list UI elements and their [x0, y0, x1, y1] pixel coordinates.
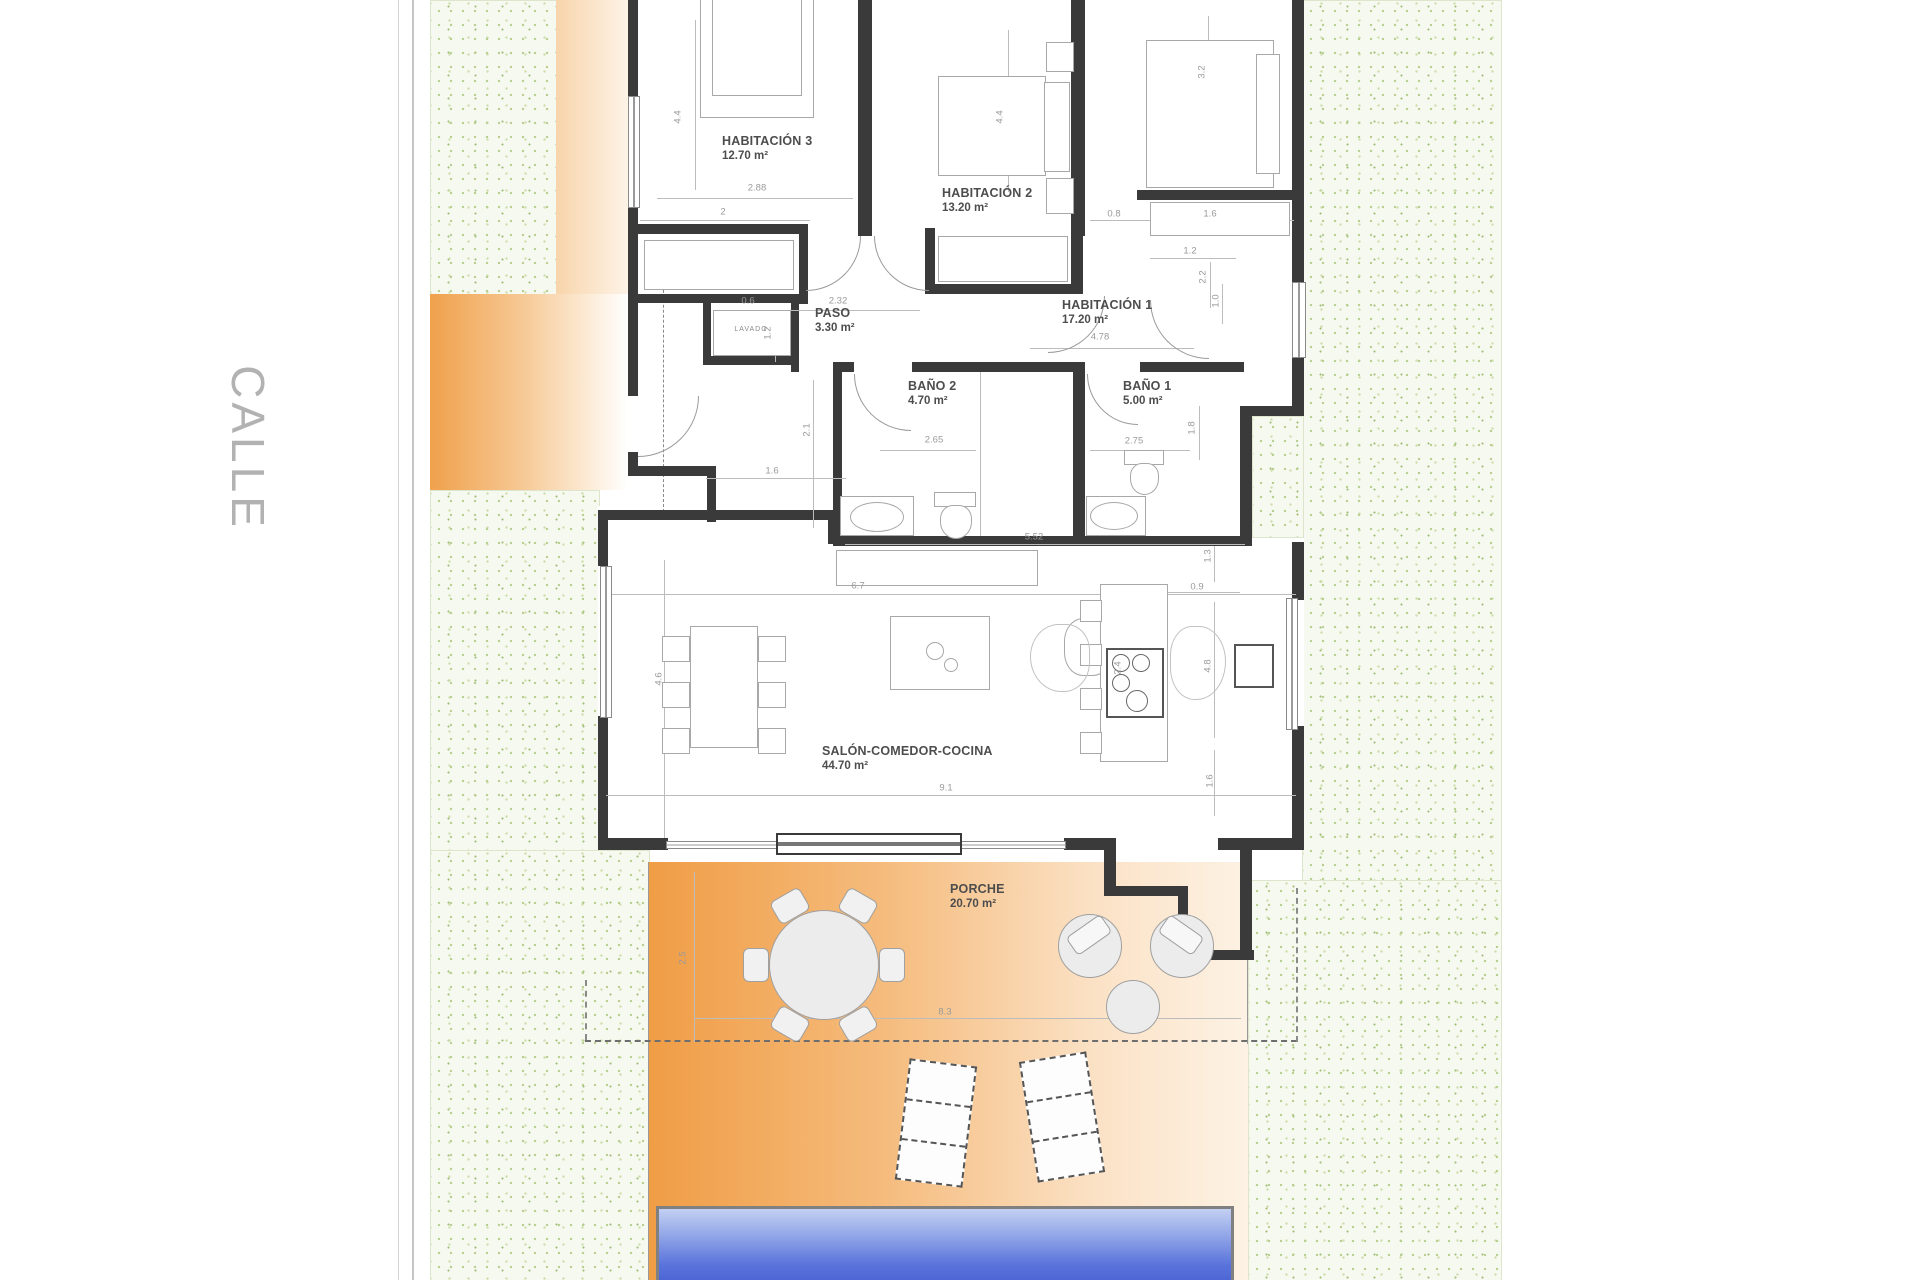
closet [644, 240, 794, 290]
wall-segment [912, 362, 1073, 372]
side-table [1106, 980, 1160, 1034]
room-name: BAÑO 1 [1123, 379, 1171, 393]
wall-segment [598, 510, 608, 566]
wall-segment [1240, 838, 1252, 958]
bed-mattress [712, 0, 802, 96]
driveway-side-strip [556, 0, 628, 294]
chair [758, 636, 786, 662]
chair [662, 636, 690, 662]
room-label-salon: SALÓN-COMEDOR-COCINA44.70 m² [822, 744, 993, 772]
wall-segment [628, 294, 808, 303]
window [666, 841, 778, 849]
wall-segment [1240, 406, 1252, 546]
laundry-label: LAVADO [716, 326, 786, 333]
room-name: HABITACIÓN 3 [722, 134, 812, 148]
burner [1132, 654, 1150, 672]
room-area: 5.00 m² [1123, 395, 1171, 407]
porch-boundary-dashed-right [1296, 888, 1298, 1042]
dim-label: 1.2 [1183, 246, 1196, 257]
lounger-slat [1033, 1131, 1097, 1143]
porch-table [769, 910, 879, 1020]
wall-segment [791, 302, 799, 372]
room-label-porche: PORCHE20.70 m² [950, 882, 1005, 910]
porch-chair [879, 948, 905, 982]
chair [758, 728, 786, 754]
room-area: 20.70 m² [950, 898, 1005, 910]
porch-boundary-dashed [585, 1040, 1297, 1042]
window [600, 566, 612, 718]
dim-label: 2.88 [748, 183, 767, 194]
window [628, 96, 640, 208]
dim-label: 6.7 [851, 581, 864, 592]
dim-label: 2.1 [802, 423, 813, 436]
dim-label: 1.2 [763, 326, 774, 339]
wall-segment [1137, 190, 1295, 200]
wall-segment [703, 302, 711, 364]
wall-segment [828, 510, 837, 544]
room-name: HABITACIÓN 2 [942, 186, 1032, 200]
toilet-bowl [940, 505, 972, 539]
room-label-habitacion3: HABITACIÓN 312.70 m² [722, 134, 812, 162]
street-label: CALLE [178, 348, 318, 548]
garden-notch [1252, 416, 1304, 538]
porch-chair [743, 948, 769, 982]
wall-segment [628, 0, 638, 96]
dimension-line [657, 198, 853, 199]
toilet-bowl [1130, 463, 1159, 495]
room-area: 13.20 m² [942, 202, 1032, 214]
room-label-habitacion2: HABITACIÓN 213.20 m² [942, 186, 1032, 214]
room-name: SALÓN-COMEDOR-COCINA [822, 744, 993, 758]
wall-segment [1140, 362, 1244, 372]
chair [662, 682, 690, 708]
dim-label: 4.4 [995, 110, 1006, 123]
wardrobe [938, 236, 1068, 282]
room-label-bano1: BAÑO 15.00 m² [1123, 379, 1171, 407]
chair [662, 728, 690, 754]
wall-segment [1292, 726, 1304, 848]
stool [1080, 688, 1102, 710]
table-decor [944, 658, 958, 672]
dim-label: 1.0 [1211, 294, 1222, 307]
room-area: 44.70 m² [822, 760, 993, 772]
fridge [1234, 644, 1274, 688]
dim-label: 2.2 [1198, 270, 1209, 283]
table-decor [926, 642, 944, 660]
dimension-line [790, 310, 920, 311]
dimension-line [694, 872, 695, 1042]
laundry-unit [713, 310, 791, 356]
garden-left-upper [430, 490, 600, 854]
room-area: 17.20 m² [1062, 314, 1152, 326]
dim-label: 5.52 [1025, 532, 1044, 543]
window [1286, 598, 1298, 730]
dim-label: 0.8 [1107, 209, 1120, 220]
dim-label: 9.1 [939, 783, 952, 794]
window [958, 841, 1066, 849]
dimension-line [845, 544, 1245, 545]
dimension-line [606, 795, 1296, 796]
dimension-line [1222, 284, 1223, 324]
dimension-line [640, 220, 810, 221]
room-label-paso: PASO3.30 m² [815, 306, 855, 334]
dimension-line [1168, 592, 1240, 593]
dim-label: 2.5 [678, 951, 689, 964]
dim-label: 2.75 [1125, 436, 1144, 447]
dim-label: 1.6 [1205, 774, 1216, 787]
garden-left-lower [430, 850, 650, 1280]
sink [1090, 502, 1138, 530]
dimension-line [1150, 258, 1236, 259]
dim-label: 2.65 [925, 435, 944, 446]
porch-boundary-dashed-left [585, 980, 587, 1040]
pool [656, 1206, 1234, 1280]
dining-table [690, 626, 758, 748]
wall-segment [628, 224, 808, 234]
dimension-line [1214, 546, 1215, 582]
dim-label: 4.8 [1203, 659, 1214, 672]
lounger-slat [902, 1138, 966, 1148]
wall-segment [598, 510, 838, 520]
floor-plan: CALLE [0, 0, 1920, 1280]
dim-label: 2 [720, 207, 725, 218]
dim-label: 3.2 [1197, 65, 1208, 78]
plot-left-line [412, 0, 414, 1280]
sliding-door [776, 833, 962, 855]
wall-segment [1292, 0, 1304, 282]
room-name: BAÑO 2 [908, 379, 956, 393]
stool [1080, 732, 1102, 754]
sink [850, 502, 904, 532]
street-curb-line [398, 0, 399, 1280]
wall-segment [598, 716, 608, 848]
wall-segment [1292, 542, 1304, 600]
dim-label: 1.8 [1187, 421, 1198, 434]
dimension-line [880, 450, 976, 451]
stool [1080, 600, 1102, 622]
burner [1126, 690, 1148, 712]
porch-edge-left [648, 862, 649, 1280]
garden-right-lower [1248, 880, 1502, 1280]
garden-top-left [430, 0, 558, 296]
dimension-line [706, 478, 846, 479]
bed-headboard [1044, 82, 1070, 172]
dimension-line [1199, 406, 1200, 460]
wall-segment [598, 838, 668, 850]
dim-label: 4.6 [654, 672, 665, 685]
window [1292, 282, 1306, 358]
wall-segment [1218, 838, 1304, 850]
dim-label: 2.4 [1113, 661, 1124, 674]
wall-segment [703, 356, 799, 365]
lounger-slat [907, 1098, 971, 1108]
dim-label: 0.6 [741, 296, 754, 307]
wall-segment [858, 0, 872, 236]
wall-segment [1071, 228, 1083, 294]
burner [1112, 674, 1130, 692]
room-label-bano2: BAÑO 24.70 m² [908, 379, 956, 407]
dimension-line [813, 380, 814, 528]
dim-label: 4.4 [673, 110, 684, 123]
dim-label: 4.78 [1091, 332, 1110, 343]
room-name: PASO [815, 306, 855, 320]
nightstand [1046, 42, 1074, 72]
room-area: 12.70 m² [722, 150, 812, 162]
nightstand [1046, 178, 1074, 214]
sofa [836, 550, 1038, 586]
dim-label: 1.6 [765, 466, 778, 477]
wardrobe [1150, 202, 1290, 236]
driveway [430, 294, 628, 490]
dimension-line [606, 594, 1296, 595]
dim-label: 8.3 [938, 1007, 951, 1018]
garden-right-upper [1302, 0, 1502, 884]
bed [1146, 40, 1274, 188]
chair [758, 682, 786, 708]
dim-label: 0.9 [1190, 582, 1203, 593]
dim-label: 2.32 [829, 296, 848, 307]
lounger-slat [1027, 1091, 1091, 1103]
dimension-line [695, 20, 696, 190]
bed [938, 76, 1046, 176]
bed-headboard [1256, 54, 1280, 174]
dim-label: 1.3 [1203, 549, 1214, 562]
person-figure [1030, 624, 1090, 692]
room-name: PORCHE [950, 882, 1005, 896]
room-area: 3.30 m² [815, 322, 855, 334]
wall-segment [1073, 362, 1085, 546]
room-name: HABITACIÓN 1 [1062, 298, 1152, 312]
room-label-habitacion1: HABITACIÓN 117.20 m² [1062, 298, 1152, 326]
wall-segment [1104, 886, 1188, 896]
wall-segment [925, 284, 1081, 294]
shower-divider [980, 372, 981, 536]
room-area: 4.70 m² [908, 395, 956, 407]
wall-segment [628, 466, 716, 476]
dim-label: 1.6 [1203, 209, 1216, 220]
